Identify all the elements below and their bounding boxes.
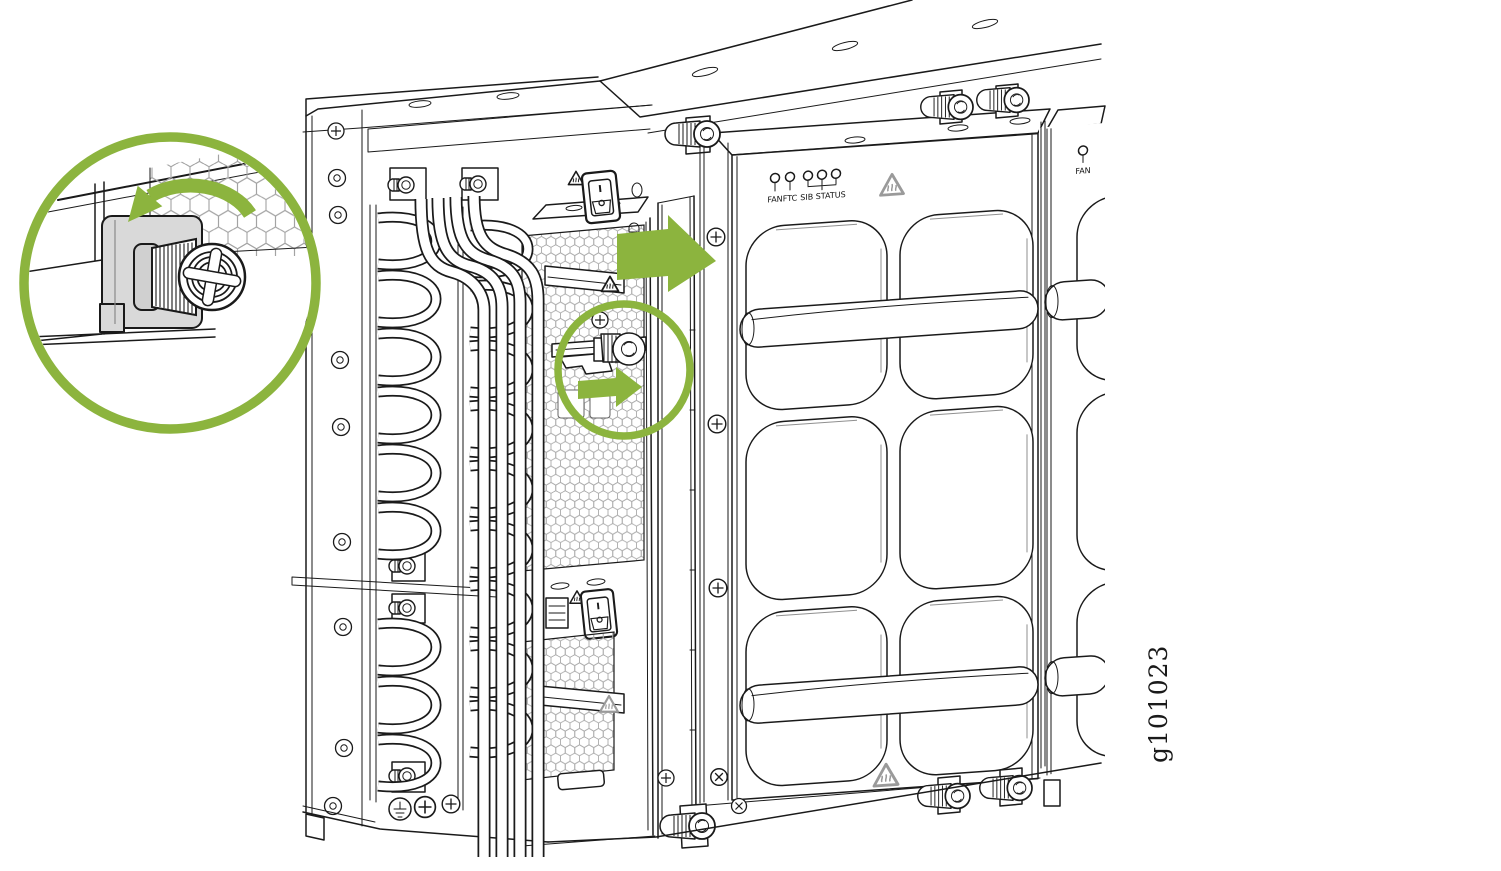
chassis-rear-view-figure: FAN FTC SIB STATUS [0,0,1501,871]
hardware-removal-illustration: FAN FTC SIB STATUS [0,0,1501,871]
captive-thumbscrew [921,95,973,120]
rack-hole [325,798,342,815]
rack-hole [333,419,350,436]
ground-screw [442,795,460,813]
divider-screw [658,770,674,786]
handle-bar-stub [1045,655,1109,697]
fan-cutout [1077,385,1217,573]
rack-hole [332,352,349,369]
rack-hole [336,740,353,757]
vent-slot [972,17,999,30]
led-sib-2 [818,170,827,180]
tray-foot [1044,780,1060,806]
fan-cutout [746,414,887,602]
ground-screw [415,797,436,818]
vent-slot [497,92,520,101]
bottom-screw [732,799,747,814]
led-fan [1079,146,1088,156]
rail-screw [328,123,344,139]
figure-id-label: g101023 [1144,645,1173,763]
vent-slot [409,100,432,109]
flange-screw [711,769,728,786]
cable-management [292,168,538,857]
bracket-bolt [389,600,415,616]
rack-hole [329,170,346,187]
latch-thumbscrew-knob [613,333,645,365]
power-switch-icon [581,170,620,223]
captive-thumbscrew [918,784,970,809]
led-label-fan: FAN [1075,166,1090,176]
cable-loops-left [378,217,436,787]
tray-face: FAN FTC SIB STATUS [732,134,1038,800]
psu-latch-tab [557,770,604,790]
captive-thumbscrew [665,121,720,147]
handle-bar-stub [1045,279,1109,321]
vent-slot [692,65,719,78]
bracket-bolt [388,177,414,193]
rack-hole [330,207,347,224]
led-label-fan: FAN [767,194,782,204]
vent-slot [832,39,859,52]
rack-rail-holes [325,123,353,815]
bracket-bolt [389,558,415,574]
led-sib-3 [832,169,841,179]
flange-screw [707,228,725,246]
led-ftc [786,172,795,182]
led-fan [771,173,780,183]
thumbscrew-closeup-callout [24,132,336,429]
flange-screw [708,415,726,433]
captive-thumbscrew [977,88,1029,113]
rack-hole [334,534,351,551]
led-label-ftc: FTC [783,193,798,203]
flange-screw [709,579,727,597]
fan-tray-adjacent: FAN [1039,106,1217,806]
led-sib-1 [804,171,813,181]
tray-face: FAN [1039,115,1217,777]
bracket-bolt [460,176,486,192]
divider-panel [658,196,696,838]
chassis-foot [306,814,324,840]
tray-flange [700,143,728,803]
grounding-lug [389,795,460,820]
fan-cutout [900,404,1033,591]
fan-tray-primary: FAN FTC SIB STATUS [660,84,1050,848]
rack-hole [335,619,352,636]
keyhole [632,183,642,197]
